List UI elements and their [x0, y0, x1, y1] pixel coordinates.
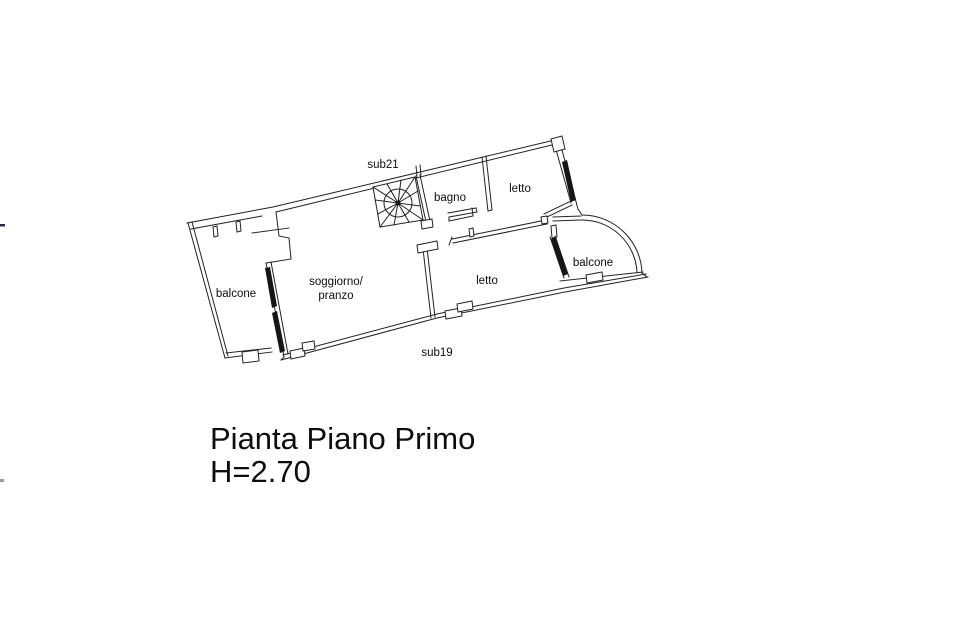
stair-hub-dot: [396, 201, 401, 206]
room-label-balcone-left: balcone: [216, 288, 256, 300]
unit-label-sub19: sub19: [421, 347, 452, 359]
room-label-soggiorno-line2: pranzo: [318, 290, 353, 302]
caption-height: H=2.70: [210, 454, 311, 489]
caption-title: Pianta Piano Primo: [210, 421, 475, 456]
floor-plan-page: sub21 bagno letto balcone letto soggiorn…: [0, 0, 975, 636]
floor-plan-drawing: sub21 bagno letto balcone letto soggiorn…: [0, 0, 975, 636]
caption: Pianta Piano Primo H=2.70: [210, 421, 475, 489]
letto-top-walls: [544, 160, 576, 224]
room-label-letto-top: letto: [509, 183, 531, 195]
staircase: [373, 165, 433, 229]
unit-label-sub21: sub21: [367, 159, 398, 171]
left-edge-mark-upper: [0, 224, 5, 227]
room-label-soggiorno-line1: soggiorno/: [309, 276, 364, 288]
soggiorno-walls: [252, 212, 291, 357]
left-edge-mark-lower: [0, 479, 4, 482]
room-label-bagno: bagno: [434, 192, 466, 204]
bagno-walls: [448, 156, 492, 221]
room-label-letto-bottom: letto: [476, 275, 498, 287]
room-label-balcone-right: balcone: [573, 257, 613, 269]
balcone-right-walls: [550, 216, 647, 283]
